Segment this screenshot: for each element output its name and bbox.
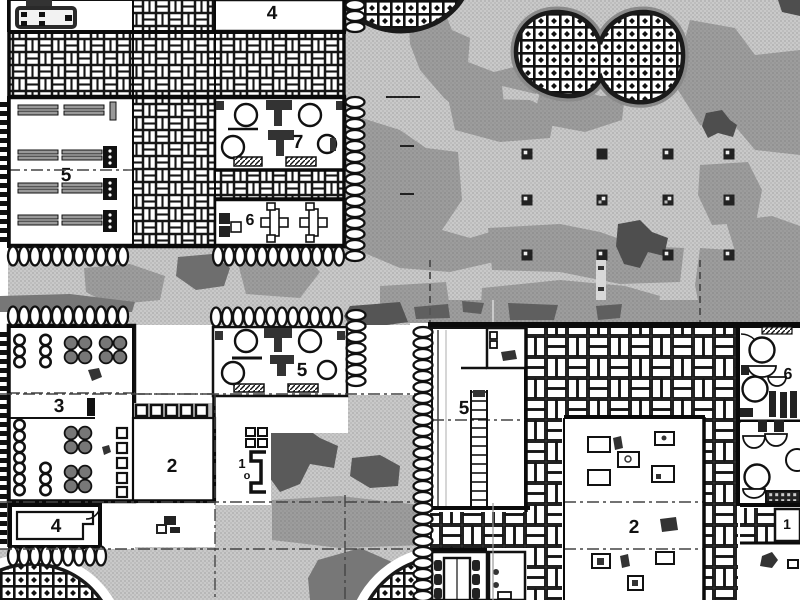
svg-text:4: 4	[267, 3, 278, 24]
svg-text:1: 1	[238, 456, 245, 471]
svg-text:5: 5	[459, 398, 470, 419]
svg-text:1: 1	[783, 516, 791, 532]
svg-text:4: 4	[51, 516, 62, 537]
svg-text:6: 6	[246, 212, 255, 229]
svg-text:6: 6	[784, 366, 793, 383]
svg-text:7: 7	[293, 132, 304, 153]
svg-text:5: 5	[297, 360, 308, 381]
svg-text:3: 3	[54, 396, 65, 417]
svg-text:o: o	[244, 470, 251, 482]
svg-text:2: 2	[167, 456, 178, 477]
svg-text:2: 2	[629, 517, 640, 538]
